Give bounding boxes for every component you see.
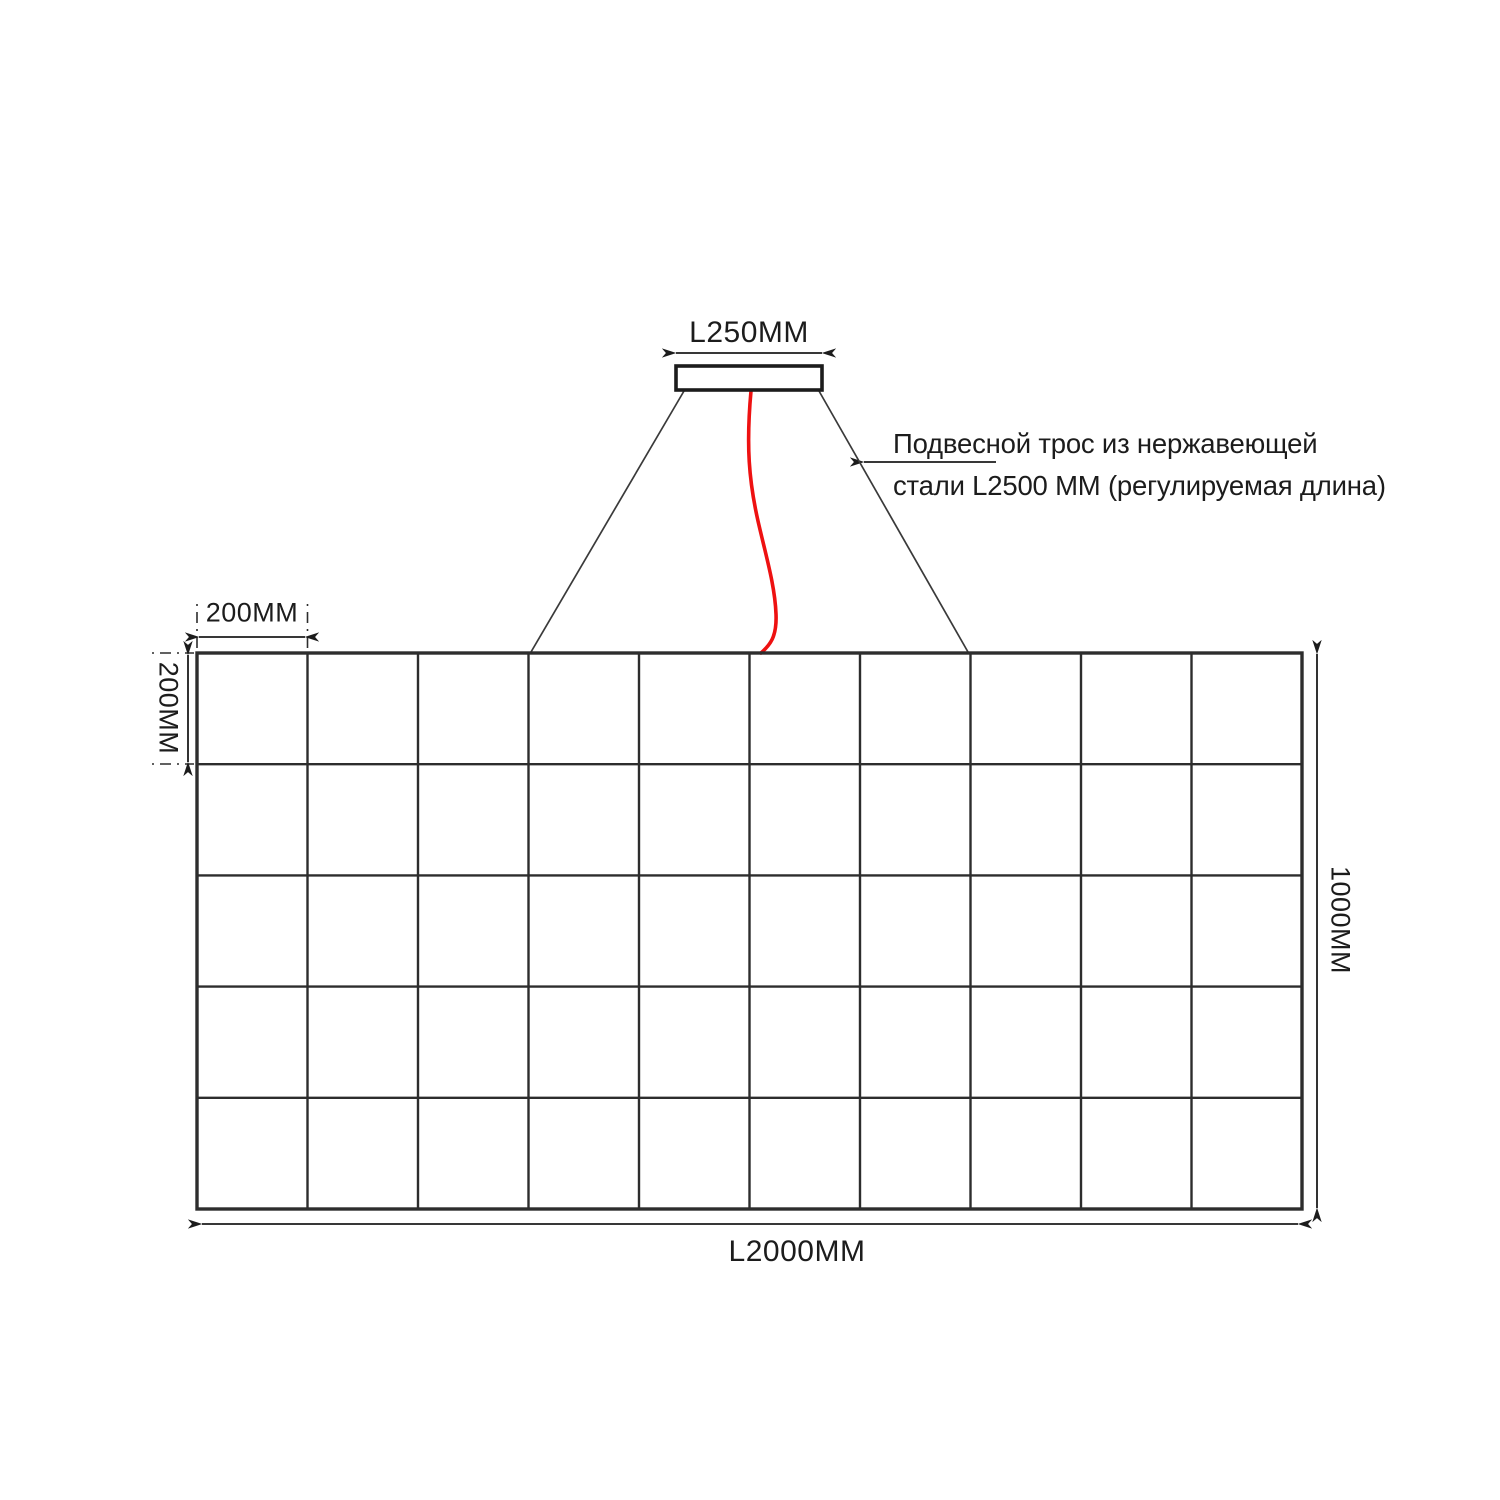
diagram-linework <box>0 0 1500 1500</box>
cell-height-label: 200MM <box>153 662 184 755</box>
grid-inner-lines <box>197 653 1302 1209</box>
ceiling-mount-bar <box>676 366 822 390</box>
suspension-cable-left <box>531 391 684 652</box>
power-cord <box>749 391 777 653</box>
drawing-canvas: L250MM 200MM 200MM 1000MM L2000MM Подвес… <box>0 0 1500 1500</box>
mount-width-label: L250MM <box>689 316 809 350</box>
grid-panel <box>197 653 1302 1209</box>
cable-annotation-line2: стали L2500 ММ (регулируемая длина) <box>893 465 1386 507</box>
cell-width-label: 200MM <box>206 598 299 629</box>
cable-annotation-line1: Подвесной трос из нержавеющей <box>893 423 1386 465</box>
cable-annotation: Подвесной трос из нержавеющей стали L250… <box>893 423 1386 507</box>
total-height-label: 1000MM <box>1325 866 1356 974</box>
total-width-label: L2000MM <box>729 1235 866 1269</box>
